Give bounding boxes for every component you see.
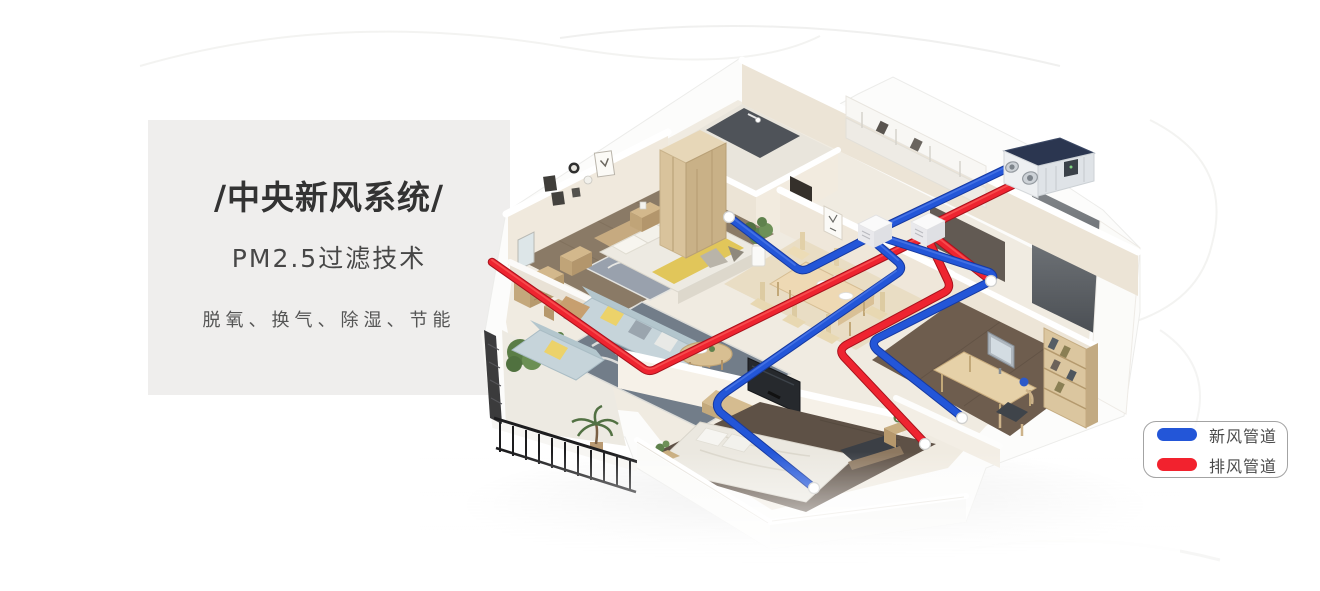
banner: /中央新风系统/ PM2.5过滤技术 脱氧、换气、除湿、节能 (0, 0, 1320, 591)
apartment-illustration (0, 0, 1320, 591)
legend-item-fresh-air: 新风管道 (1144, 423, 1287, 447)
exhaust-duct-label: 排风管道 (1209, 453, 1277, 477)
legend-item-exhaust: 排风管道 (1144, 453, 1287, 477)
fresh-air-duct-swatch (1157, 428, 1197, 441)
pipe-legend: 新风管道 排风管道 (1143, 421, 1288, 478)
fresh-air-duct-label: 新风管道 (1209, 423, 1277, 447)
desk-globe (1020, 378, 1029, 387)
wardrobe (660, 130, 726, 258)
bottom-fade (420, 452, 1180, 591)
exhaust-duct-swatch (1157, 458, 1197, 471)
